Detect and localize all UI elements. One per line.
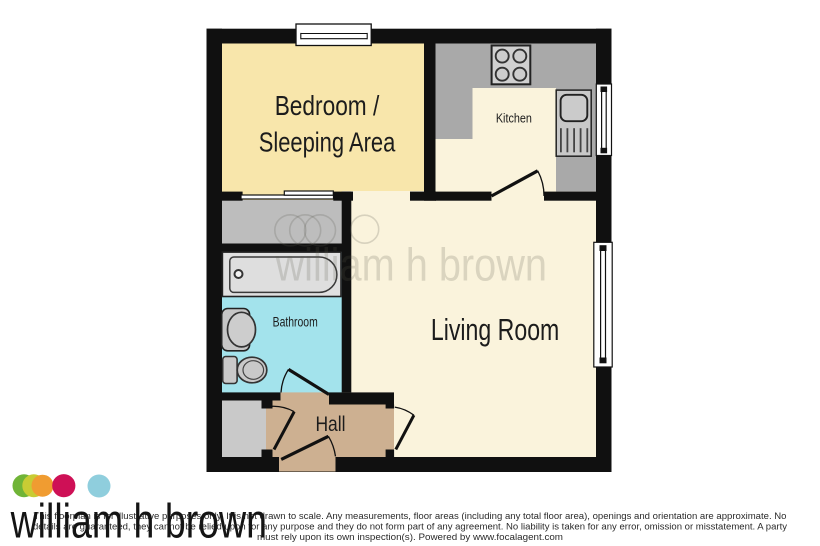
svg-text:Living Room: Living Room (431, 313, 559, 347)
svg-text:william h brown: william h brown (275, 239, 547, 291)
svg-text:Sleeping Area: Sleeping Area (259, 127, 396, 158)
svg-text:Hall: Hall (315, 413, 345, 436)
svg-text:must rely upon its own inspect: must rely upon its own inspection(s). Po… (257, 532, 563, 542)
svg-text:william h brown: william h brown (10, 496, 267, 546)
svg-text:Bedroom /: Bedroom / (275, 90, 380, 121)
svg-text:Bathroom: Bathroom (273, 313, 318, 329)
svg-text:Kitchen: Kitchen (496, 110, 532, 125)
